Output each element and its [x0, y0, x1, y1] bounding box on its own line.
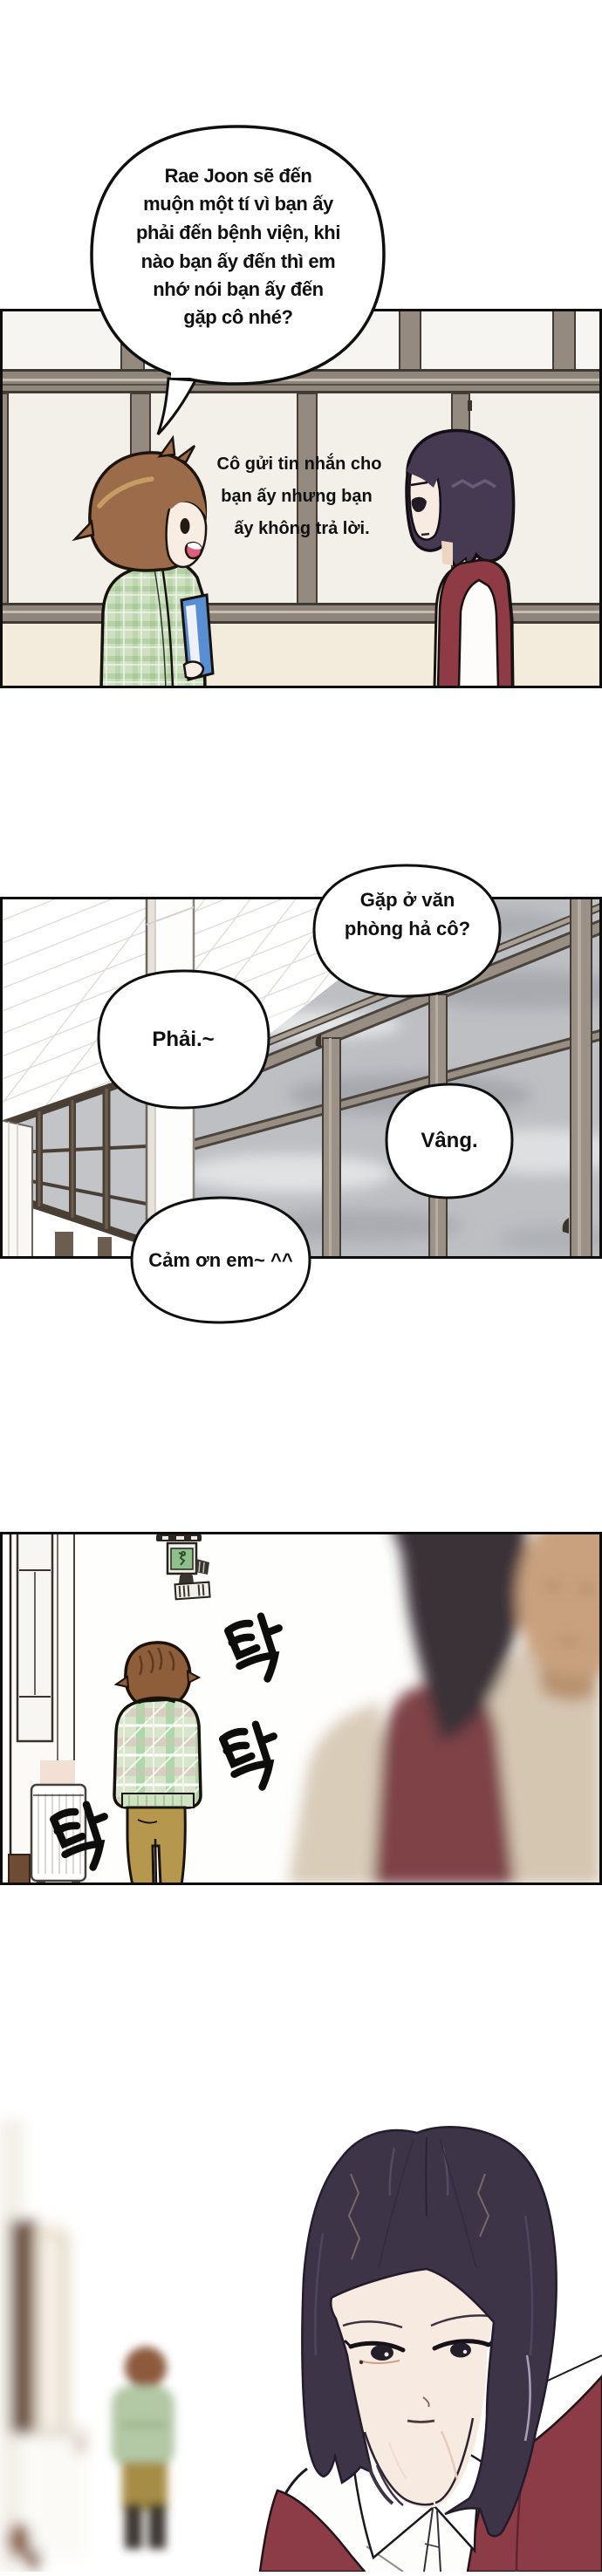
svg-text:phải đến bệnh viện, khi: phải đến bệnh viện, khi [136, 222, 340, 243]
svg-text:muộn một tí vì bạn ấy: muộn một tí vì bạn ấy [143, 193, 334, 215]
svg-text:Rae Joon sẽ đến: Rae Joon sẽ đến [165, 165, 312, 187]
svg-text:nào bạn ấy đến thì em: nào bạn ấy đến thì em [141, 250, 336, 272]
svg-text:Cô gửi tin nhắn cho: Cô gửi tin nhắn cho [217, 453, 382, 474]
svg-text:Gặp ở văn: Gặp ở văn [360, 889, 455, 911]
svg-text:Cảm ơn em~ ^^: Cảm ơn em~ ^^ [148, 1249, 293, 1271]
svg-text:ấy không trả lời.: ấy không trả lời. [234, 519, 369, 538]
svg-text:nhớ nói bạn ấy đến: nhớ nói bạn ấy đến [153, 278, 323, 300]
svg-text:phòng hả cô?: phòng hả cô? [345, 918, 470, 940]
svg-text:bạn ấy nhưng bạn: bạn ấy nhưng bạn [221, 487, 372, 506]
svg-text:Vâng.: Vâng. [421, 1129, 477, 1152]
svg-text:gặp cô nhé?: gặp cô nhé? [183, 306, 292, 328]
svg-text:Phải.~: Phải.~ [152, 1028, 214, 1051]
